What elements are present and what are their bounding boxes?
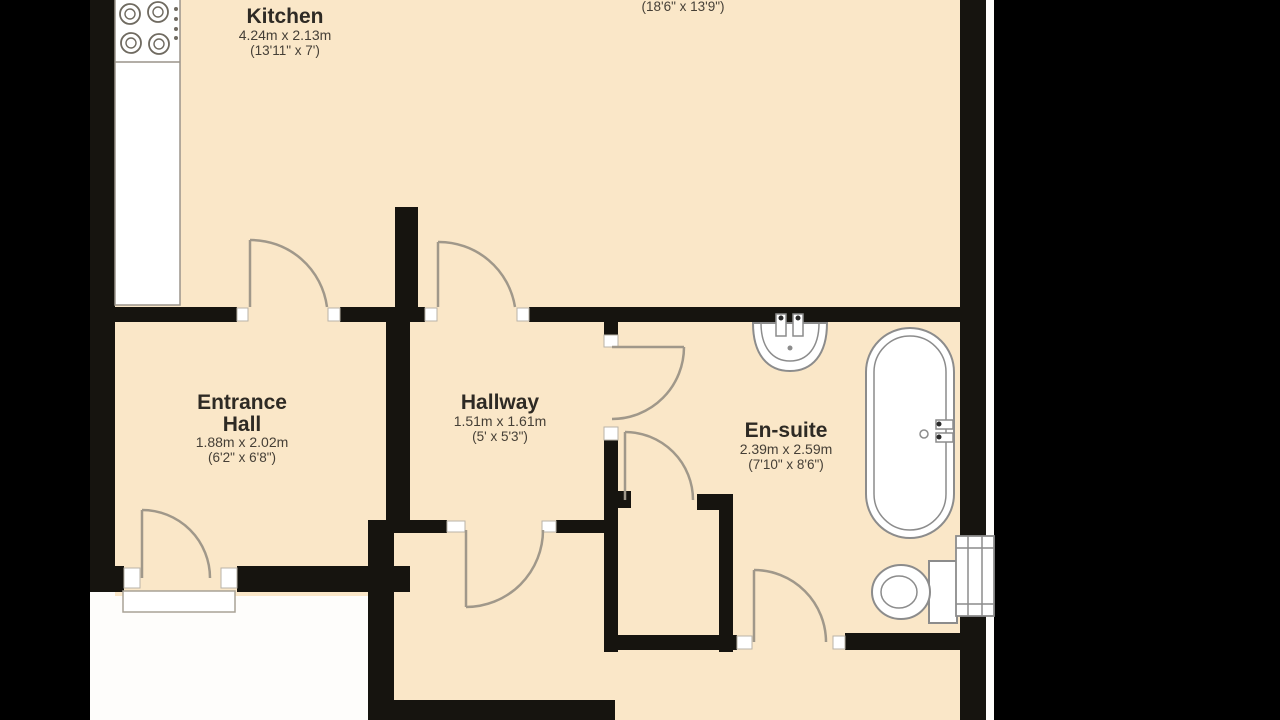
- en-suite-dims-metric: 2.39m x 2.59m: [740, 441, 833, 457]
- wall-ensuite-divider-bottom: [604, 440, 618, 652]
- wall-entrancehall-right: [386, 307, 410, 527]
- wall-left-outer: [90, 0, 115, 592]
- floorplan-frame: (18'6" x 13'9") Kitchen 4.24m x 2.13m (1…: [0, 0, 1280, 720]
- wall-ensuite-bottom: [845, 633, 962, 650]
- kitchen-counter: [115, 0, 180, 305]
- wall-hallway-bottom-2: [556, 520, 604, 533]
- wall-right-outer-lower: [960, 616, 986, 720]
- hallway-dims-metric: 1.51m x 1.61m: [454, 413, 547, 429]
- wall-top-1: [115, 307, 237, 322]
- entrance-hall-dims-metric: 1.88m x 2.02m: [196, 434, 289, 450]
- wall-cupboard-bottom: [604, 635, 737, 650]
- living-room-dims-imperial: (18'6" x 13'9"): [641, 0, 724, 14]
- kitchen-dims-imperial: (13'11" x 7'): [250, 43, 320, 58]
- wall-bedroom-bottom: [394, 700, 615, 720]
- entrance-hall-dims-imperial: (6'2" x 6'8"): [208, 450, 276, 465]
- kitchen-dims-metric: 4.24m x 2.13m: [239, 27, 332, 43]
- window-icon: [956, 536, 994, 616]
- wall-hallway-bottom-1: [394, 520, 447, 533]
- floor-living-kitchen: [115, 0, 960, 322]
- wall-bedroom-left: [368, 520, 394, 720]
- entrance-hall-name-line2: Hall: [223, 413, 262, 436]
- label-living-room: (18'6" x 13'9"): [641, 0, 724, 14]
- wall-ensuite-divider-top: [604, 318, 618, 336]
- hallway-dims-imperial: (5' x 5'3"): [472, 429, 528, 444]
- entrance-threshold: [123, 591, 235, 612]
- floorplan-svg: (18'6" x 13'9") Kitchen 4.24m x 2.13m (1…: [0, 0, 1280, 720]
- wall-right-outer-upper: [960, 0, 986, 538]
- wall-top-3: [529, 307, 960, 322]
- en-suite-dims-imperial: (7'10" x 8'6"): [748, 457, 824, 472]
- kitchen-name: Kitchen: [246, 5, 323, 28]
- label-en-suite: En-suite 2.39m x 2.59m (7'10" x 8'6"): [740, 419, 833, 472]
- wall-kitchen-living-stub: [395, 207, 418, 310]
- entrance-hall-name-line1: Entrance: [197, 391, 287, 414]
- wall-entrance-bottom-left: [90, 566, 124, 592]
- toilet-icon: [872, 561, 957, 623]
- label-kitchen: Kitchen 4.24m x 2.13m (13'11" x 7'): [239, 5, 332, 58]
- bathtub-icon: [866, 328, 954, 538]
- floor-bedroom: [368, 520, 962, 720]
- hallway-name: Hallway: [461, 391, 540, 414]
- en-suite-name: En-suite: [745, 419, 828, 442]
- wall-cupboard-right: [719, 494, 733, 652]
